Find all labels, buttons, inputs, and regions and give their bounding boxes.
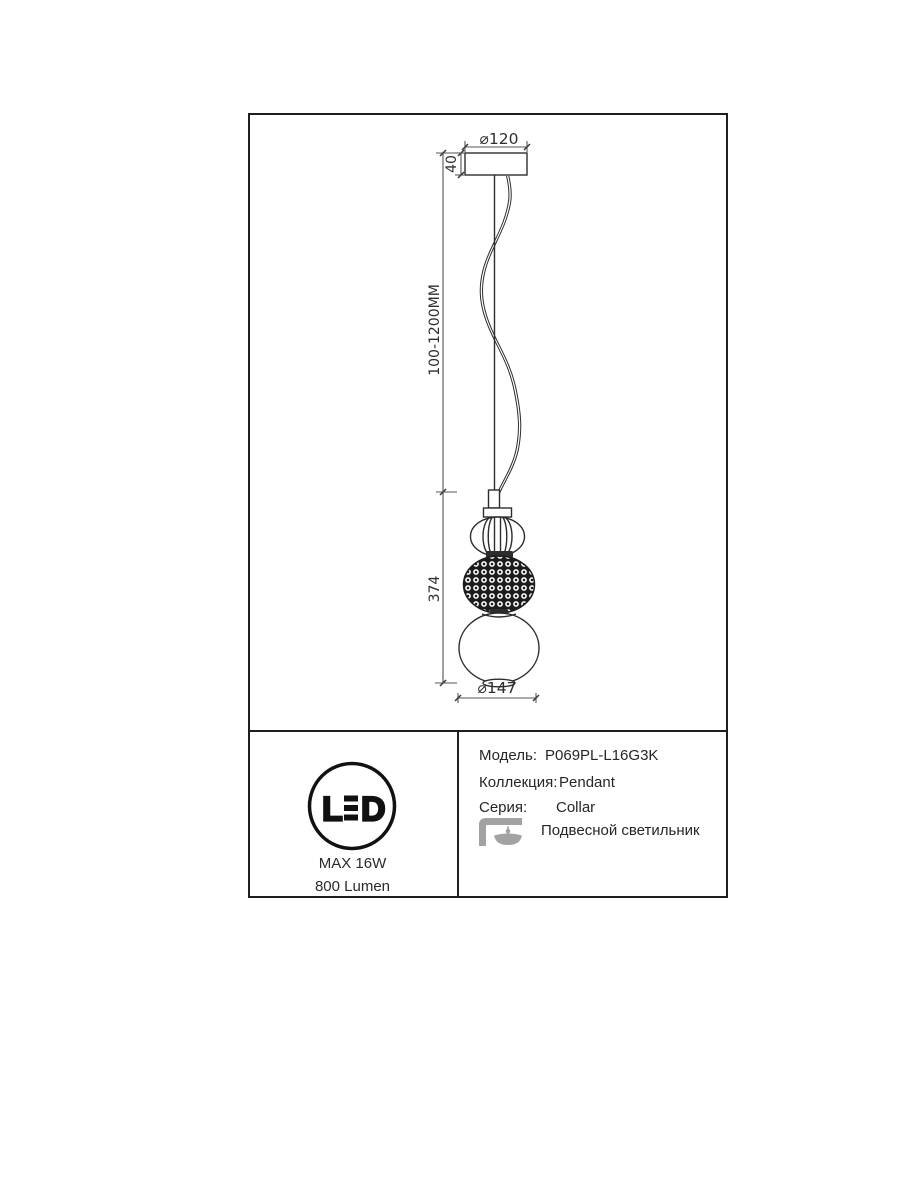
- dim-globe-diameter-label: ⌀147: [478, 679, 517, 697]
- model-value: P069PL-L16G3K: [545, 747, 658, 764]
- series-label: Серия:: [479, 799, 527, 816]
- dim-canopy-diameter: ⌀120: [462, 130, 530, 152]
- dim-canopy-height: 40: [444, 150, 464, 178]
- lamp-stem: [489, 490, 500, 508]
- dim-canopy-diameter-label: ⌀120: [480, 130, 519, 148]
- pendant-lamp-technical-drawing: ⌀120 40 100-1200MM 374 ⌀147: [248, 113, 728, 731]
- collection-label: Коллекция:: [479, 774, 557, 791]
- glass-globe-shade: [459, 613, 539, 687]
- dim-canopy-height-label: 40: [444, 155, 460, 173]
- lamp-socket: [484, 508, 512, 517]
- model-info-cell: Модель: P069PL-L16G3K Коллекция: Pendant…: [459, 732, 726, 898]
- led-badge-icon: L D: [304, 758, 400, 854]
- led-letter-d: D: [361, 791, 386, 829]
- luminous-flux-label: 800 Lumen: [248, 878, 457, 895]
- led-letter-l: L: [322, 791, 343, 829]
- collection-value: Pendant: [559, 774, 615, 791]
- max-power-label: MAX 16W: [248, 855, 457, 872]
- spec-sheet-page: ⌀120 40 100-1200MM 374 ⌀147: [0, 0, 900, 1200]
- led-spec-cell: L D MAX 16W 800 Lumen: [248, 732, 457, 898]
- power-cord: [480, 176, 521, 494]
- dim-suspension-length-label: 100-1200MM: [427, 284, 443, 376]
- ceiling-canopy: [465, 153, 527, 175]
- dim-globe-diameter: ⌀147: [455, 679, 539, 703]
- product-type-label: Подвесной светильник: [541, 822, 700, 839]
- cage-shade: [471, 517, 525, 556]
- series-value: Collar: [556, 799, 595, 816]
- dim-fixture-height-label: 374: [427, 576, 443, 603]
- dim-vertical-chain: 100-1200MM 374: [427, 150, 465, 686]
- crystal-ball-shade: [464, 551, 535, 616]
- pendant-lamp-icon: [479, 815, 522, 846]
- model-label: Модель:: [479, 747, 537, 764]
- led-letter-e-bars: [344, 796, 358, 821]
